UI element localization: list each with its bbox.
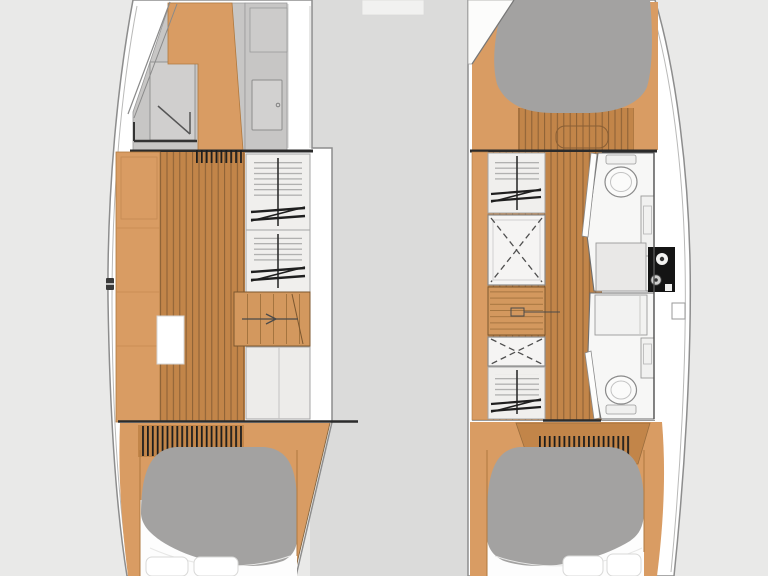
- appliance-dial-center: [654, 278, 658, 282]
- pillow: [194, 557, 238, 576]
- starboard-side-trim: [472, 152, 488, 420]
- port-side-berth: [116, 152, 160, 422]
- toilet-tank: [606, 155, 636, 164]
- forward-double-berth: [494, 0, 652, 113]
- pillow: [146, 557, 188, 576]
- toilet: [606, 376, 637, 404]
- pillow: [607, 554, 641, 576]
- ceiling-hatch-forward: [488, 215, 545, 285]
- floorplan-canvas: [0, 0, 768, 576]
- starboard-hull: [468, 0, 690, 576]
- appliance-dial-center: [660, 257, 664, 261]
- floor-hatch: [157, 316, 184, 364]
- head-counter: [596, 243, 646, 291]
- catamaran-floorplan: [0, 0, 768, 576]
- boarding-notch: [672, 303, 685, 319]
- toilet-tank: [606, 405, 636, 414]
- appliance-switch: [665, 284, 672, 291]
- port-forward-cabinet: [250, 8, 287, 52]
- starboard-wardrobe-aft: [488, 367, 545, 419]
- bridge-deck: [310, 0, 472, 576]
- port-staircase: [234, 292, 310, 346]
- port-counter: [246, 347, 310, 419]
- appliance-panel: [648, 247, 675, 292]
- port-aft-cabin: [119, 423, 330, 576]
- bed-foot-planks: [518, 108, 634, 150]
- starboard-wardrobe-forward: [488, 153, 545, 213]
- aft-head: [585, 293, 654, 419]
- plank-end-comb: [194, 150, 244, 163]
- head-counter: [595, 295, 647, 335]
- foredeck-locker: [362, 0, 424, 15]
- port-wardrobe-aft: [246, 230, 310, 292]
- stair-treads: [490, 289, 543, 333]
- port-cabin-door: [252, 80, 282, 130]
- shower-pan: [150, 62, 195, 140]
- starboard-aft-cabin: [470, 422, 664, 576]
- ceiling-hatch-aft: [488, 337, 545, 366]
- toilet: [605, 167, 637, 197]
- pillow: [563, 556, 603, 576]
- port-plank-floor: [160, 152, 245, 422]
- port-wardrobe-forward: [246, 154, 310, 230]
